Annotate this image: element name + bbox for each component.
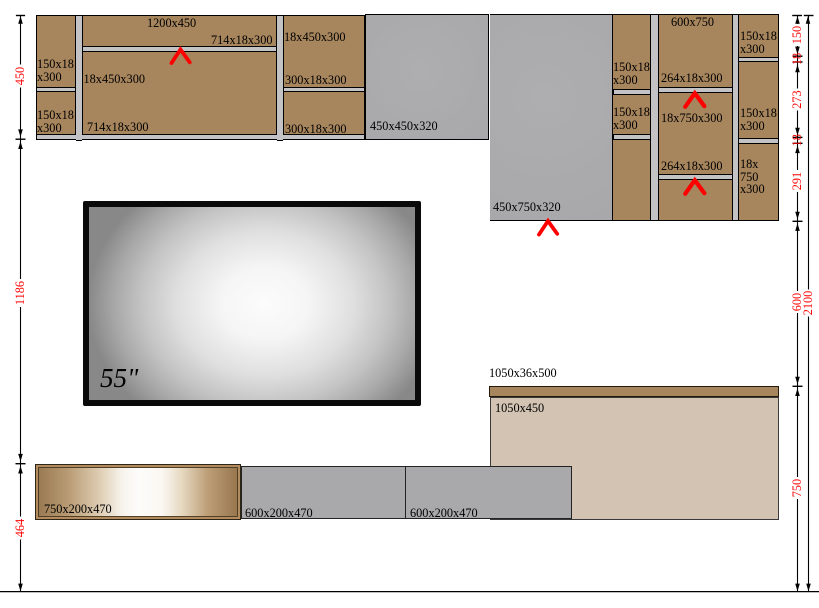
- svg-text:150: 150: [790, 26, 804, 44]
- svg-text:464: 464: [13, 519, 27, 537]
- svg-text:18: 18: [790, 134, 804, 146]
- svg-text:450: 450: [13, 67, 27, 85]
- svg-text:1186: 1186: [13, 281, 27, 305]
- svg-text:18: 18: [790, 53, 804, 65]
- svg-text:273: 273: [790, 90, 804, 108]
- svg-text:750: 750: [790, 479, 804, 497]
- svg-text:2100: 2100: [801, 291, 815, 316]
- svg-text:291: 291: [790, 172, 804, 190]
